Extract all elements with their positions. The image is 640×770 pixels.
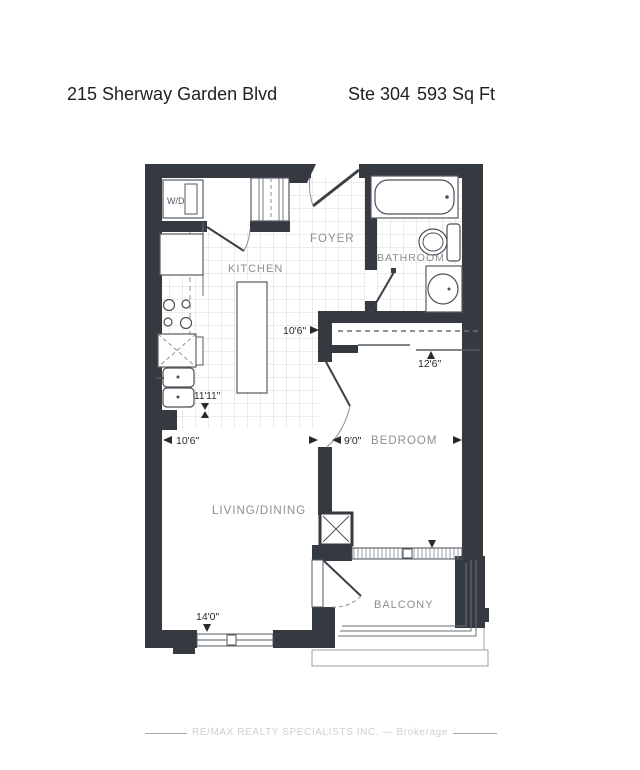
bathtub-outer: [371, 176, 458, 218]
wall-closet-front-stub: [325, 345, 358, 353]
arrow-down-icon: [203, 624, 211, 632]
bedroom-label: BEDROOM: [371, 435, 437, 447]
burner: [181, 318, 192, 329]
wall-right: [462, 164, 483, 562]
dim-bedroom-width: 9'0": [344, 435, 362, 447]
arrow-right-icon: [453, 436, 462, 444]
foyer-label: FOYER: [310, 233, 355, 245]
bedroom-door-leaf: [325, 360, 350, 406]
floorplan-drawing: W/D FOYER KITCHEN BATHROOM BEDROOM LIVIN…: [0, 0, 640, 770]
wall-kitchen-step: [145, 410, 177, 430]
burner: [182, 300, 190, 308]
wall-bottom-left: [145, 630, 197, 648]
burner: [164, 300, 175, 311]
balcony-label: BALCONY: [374, 599, 434, 611]
vanity: [426, 266, 462, 312]
sink-drain: [177, 396, 180, 399]
bedroom-window-post: [403, 549, 412, 558]
bathtub-drain: [445, 195, 449, 199]
wall-laundry-stub: [145, 221, 207, 232]
foyer-floor: [290, 177, 365, 232]
sink-drain: [177, 376, 180, 379]
bathroom-label: BATHROOM: [377, 252, 445, 264]
wall-right-notch: [480, 608, 489, 622]
fridge: [160, 234, 203, 275]
wall-bedroom-stub-bottom: [318, 447, 332, 515]
wall-bottom-mid: [273, 630, 335, 648]
wall-bedroom-stub-top: [318, 323, 332, 362]
arrow-down-icon: [428, 540, 436, 548]
living-window-post: [227, 635, 236, 645]
brokerage-watermark: RE/MAX REALTY SPECIALISTS INC. — Brokera…: [187, 727, 453, 738]
balcony-door-arc: [332, 596, 361, 607]
wall-mid-horizontal: [318, 311, 483, 323]
dim-living-width: 10'6": [176, 435, 200, 447]
kitchen-island: [237, 282, 267, 393]
burner: [164, 318, 172, 326]
arrow-right-icon: [309, 436, 318, 444]
laundry-label: W/D: [167, 196, 185, 206]
dim-bedroom-length: 12'6": [418, 358, 442, 370]
balcony-door-leaf: [324, 561, 361, 596]
balcony-slab-edge: [312, 650, 488, 666]
floorplan-page: 215 Sherway Garden Blvd Ste 304 593 Sq F…: [0, 0, 640, 770]
dim-foyer-width: 10'6": [283, 325, 307, 337]
balcony-slider-panel: [312, 560, 323, 607]
toilet-tank: [447, 224, 460, 261]
wall-bottom-left-step: [173, 648, 195, 654]
dishwasher-panel: [196, 337, 203, 365]
dim-kitchen-length: 11'11": [194, 391, 221, 402]
kitchen-label: KITCHEN: [228, 263, 283, 275]
bathroom-door-hinge: [391, 268, 396, 273]
arrow-left-icon: [163, 436, 172, 444]
wall-column-stub: [312, 545, 352, 561]
column: [320, 513, 352, 545]
wall-closet-stub: [250, 221, 290, 232]
vanity-drain: [448, 288, 451, 291]
dim-living-length: 14'0": [196, 611, 220, 623]
living-dining-label: LIVING/DINING: [212, 505, 306, 517]
